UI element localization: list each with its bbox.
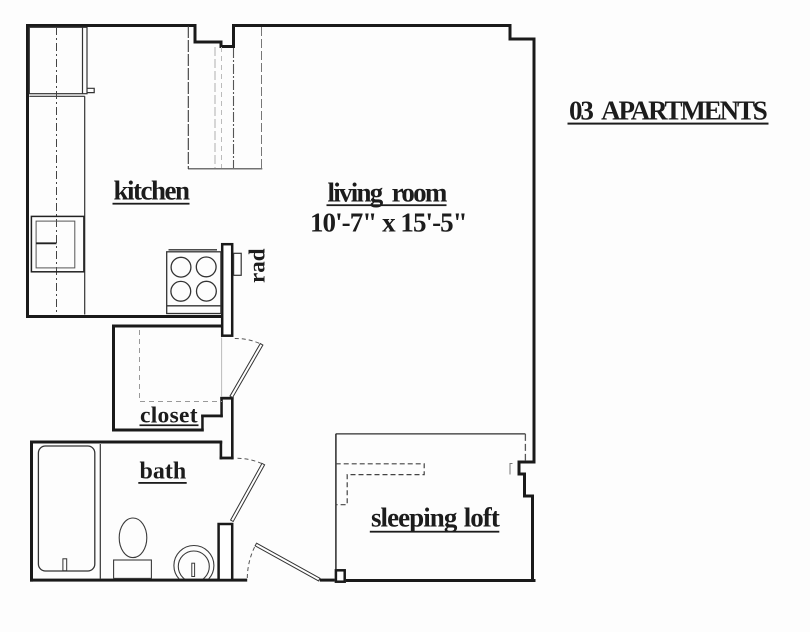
svg-text:sleeping loft: sleeping loft xyxy=(371,503,500,533)
svg-text:03 APARTMENTS: 03 APARTMENTS xyxy=(569,96,767,126)
svg-text:10'-7" x 15'-5": 10'-7" x 15'-5" xyxy=(310,208,467,238)
svg-text:bath: bath xyxy=(140,459,187,485)
svg-text:living room: living room xyxy=(328,178,448,208)
svg-text:rad: rad xyxy=(245,248,270,283)
svg-text:kitchen: kitchen xyxy=(114,176,190,206)
